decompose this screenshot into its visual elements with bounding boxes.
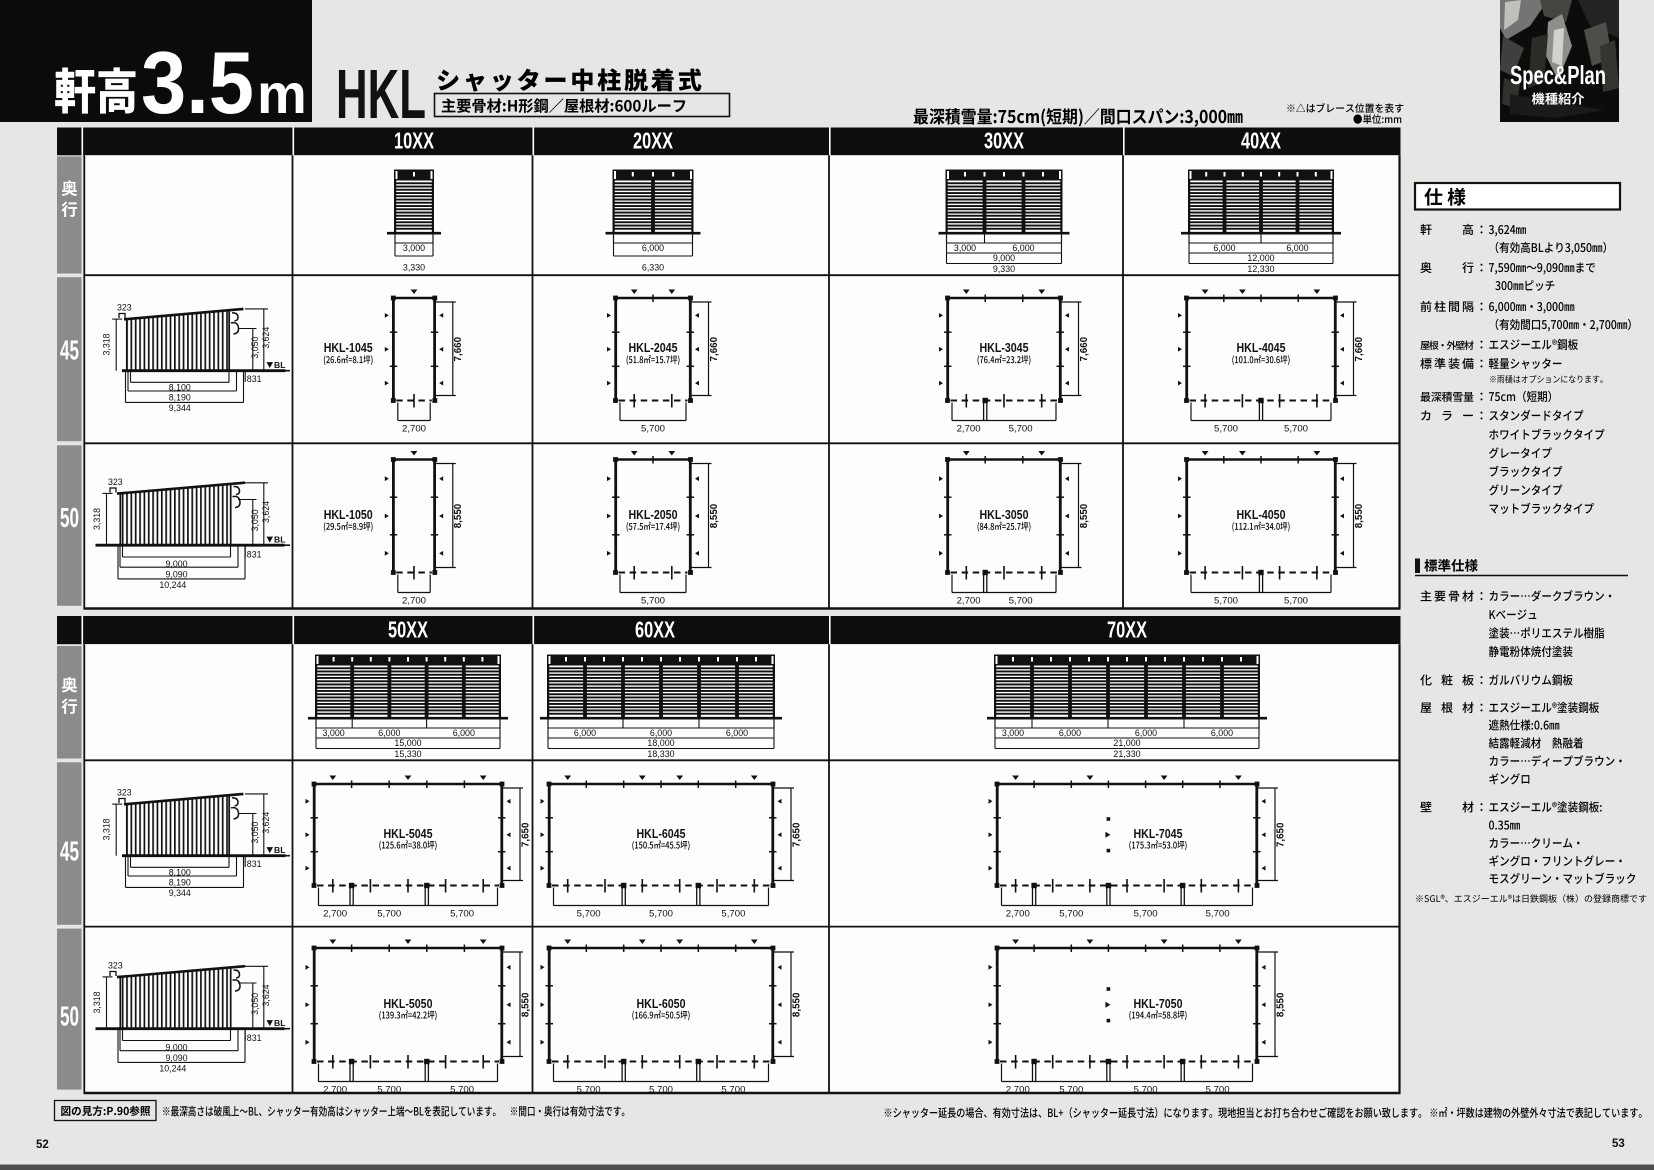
svg-text:6,000: 6,000	[650, 728, 672, 738]
svg-text:7,650: 7,650	[521, 822, 532, 847]
svg-text:2,700: 2,700	[957, 596, 981, 607]
svg-text:7,660: 7,660	[1354, 336, 1365, 361]
svg-text:5,700: 5,700	[1134, 1085, 1158, 1096]
svg-text:2,700: 2,700	[957, 424, 981, 435]
svg-text:50: 50	[60, 502, 79, 533]
svg-text:9,090: 9,090	[165, 569, 187, 579]
svg-text:HKL-1050: HKL-1050	[324, 507, 373, 522]
svg-text:6,000: 6,000	[1211, 728, 1233, 738]
svg-text:5,700: 5,700	[641, 424, 665, 435]
svg-text:3,000: 3,000	[954, 243, 976, 253]
svg-text:5,700: 5,700	[377, 1085, 401, 1096]
svg-text:m: m	[257, 62, 307, 125]
svg-text:323: 323	[108, 961, 123, 971]
svg-text:8,190: 8,190	[169, 877, 191, 887]
svg-text:7,650: 7,650	[792, 822, 803, 847]
svg-text:323: 323	[117, 788, 132, 798]
svg-text:50: 50	[60, 1001, 79, 1032]
svg-text:5,700: 5,700	[1214, 596, 1238, 607]
svg-text:831: 831	[247, 859, 262, 869]
svg-text:5,700: 5,700	[577, 1085, 601, 1096]
svg-text:12,000: 12,000	[1247, 253, 1274, 263]
svg-text:5,700: 5,700	[577, 909, 601, 920]
svg-text:3,050: 3,050	[250, 821, 260, 843]
svg-text:60XX: 60XX	[635, 617, 675, 643]
svg-text:6,000: 6,000	[453, 728, 475, 738]
svg-text:3,000: 3,000	[403, 243, 425, 253]
svg-text:6,000: 6,000	[1059, 728, 1081, 738]
svg-text:7,650: 7,650	[1276, 822, 1287, 847]
svg-text:5,700: 5,700	[649, 909, 673, 920]
svg-text:8,550: 8,550	[453, 503, 464, 528]
svg-text:3,318: 3,318	[92, 991, 102, 1013]
svg-text:5,700: 5,700	[721, 909, 745, 920]
svg-text:3,318: 3,318	[102, 333, 112, 355]
svg-text:5,700: 5,700	[377, 909, 401, 920]
svg-text:831: 831	[247, 1033, 262, 1043]
svg-text:5,700: 5,700	[641, 596, 665, 607]
svg-text:50XX: 50XX	[388, 617, 428, 643]
svg-text:3,000: 3,000	[322, 728, 344, 738]
svg-text:9,000: 9,000	[993, 253, 1015, 263]
svg-text:3,050: 3,050	[250, 336, 260, 358]
svg-text:52: 52	[36, 1139, 49, 1151]
svg-text:7,660: 7,660	[1079, 336, 1090, 361]
svg-text:2,700: 2,700	[323, 1085, 347, 1096]
svg-text:831: 831	[247, 374, 262, 384]
svg-text:HKL-3045: HKL-3045	[980, 340, 1029, 355]
svg-text:323: 323	[108, 477, 123, 487]
svg-text:9,344: 9,344	[169, 888, 191, 898]
svg-text:10,244: 10,244	[159, 580, 186, 590]
svg-text:8,550: 8,550	[1079, 503, 1090, 528]
svg-text:45: 45	[60, 335, 79, 366]
svg-text:BL: BL	[274, 535, 285, 545]
svg-text:6,330: 6,330	[642, 263, 664, 273]
svg-text:5,700: 5,700	[649, 1085, 673, 1096]
svg-text:18,000: 18,000	[647, 738, 674, 748]
svg-text:6,000: 6,000	[726, 728, 748, 738]
svg-text:2,700: 2,700	[402, 596, 426, 607]
svg-text:18,330: 18,330	[647, 749, 674, 759]
svg-text:BL: BL	[274, 1018, 285, 1028]
svg-text:5,700: 5,700	[1009, 596, 1033, 607]
svg-text:2,700: 2,700	[323, 909, 347, 920]
svg-text:5,700: 5,700	[1206, 1085, 1230, 1096]
svg-text:6,000: 6,000	[1286, 243, 1308, 253]
svg-text:5,700: 5,700	[1206, 909, 1230, 920]
svg-text:21,000: 21,000	[1113, 738, 1140, 748]
svg-text:HKL-4045: HKL-4045	[1237, 340, 1286, 355]
svg-text:15,330: 15,330	[394, 749, 421, 759]
svg-text:2,700: 2,700	[1006, 909, 1030, 920]
svg-text:2,700: 2,700	[1006, 1085, 1030, 1096]
svg-text:5,700: 5,700	[1214, 424, 1238, 435]
svg-text:HKL-4050: HKL-4050	[1237, 507, 1286, 522]
svg-text:HKL-2045: HKL-2045	[629, 340, 678, 355]
svg-text:HKL-6050: HKL-6050	[637, 996, 686, 1011]
svg-text:53: 53	[1612, 1138, 1625, 1150]
svg-text:9,090: 9,090	[165, 1053, 187, 1063]
svg-text:3.5: 3.5	[141, 33, 254, 132]
svg-text:5,700: 5,700	[1134, 909, 1158, 920]
svg-text:10,244: 10,244	[159, 1063, 186, 1073]
svg-text:10XX: 10XX	[394, 128, 434, 154]
svg-text:5,700: 5,700	[1284, 596, 1308, 607]
svg-text:5,700: 5,700	[1009, 424, 1033, 435]
svg-text:HKL-5045: HKL-5045	[384, 826, 433, 841]
svg-text:BL: BL	[274, 845, 285, 855]
svg-text:3,000: 3,000	[1002, 728, 1024, 738]
svg-text:5,700: 5,700	[450, 1085, 474, 1096]
svg-text:12,330: 12,330	[1247, 264, 1274, 274]
svg-text:8,190: 8,190	[169, 392, 191, 402]
svg-text:HKL-5050: HKL-5050	[384, 996, 433, 1011]
svg-text:HKL-7045: HKL-7045	[1134, 826, 1183, 841]
svg-text:BL: BL	[274, 360, 285, 370]
svg-text:6,000: 6,000	[574, 728, 596, 738]
svg-text:5,700: 5,700	[1284, 424, 1308, 435]
svg-text:9,344: 9,344	[169, 403, 191, 413]
svg-text:323: 323	[117, 303, 132, 313]
svg-text:3,050: 3,050	[250, 993, 260, 1015]
svg-text:20XX: 20XX	[633, 128, 673, 154]
svg-text:6,000: 6,000	[1012, 243, 1034, 253]
svg-text:831: 831	[247, 549, 262, 559]
svg-text:5,700: 5,700	[1059, 1085, 1083, 1096]
svg-text:8,550: 8,550	[1276, 992, 1287, 1017]
svg-text:6,000: 6,000	[1135, 728, 1157, 738]
svg-text:3,318: 3,318	[102, 818, 112, 840]
svg-text:7,660: 7,660	[709, 336, 720, 361]
svg-text:3,318: 3,318	[92, 508, 102, 530]
svg-text:HKL-2050: HKL-2050	[629, 507, 678, 522]
svg-text:3,330: 3,330	[403, 263, 425, 273]
svg-text:HKL-3050: HKL-3050	[980, 507, 1029, 522]
svg-text:3,050: 3,050	[250, 509, 260, 531]
svg-text:8,550: 8,550	[1354, 503, 1365, 528]
svg-text:HKL: HKL	[336, 55, 426, 133]
svg-text:5,700: 5,700	[450, 909, 474, 920]
svg-text:Spec&Plan: Spec&Plan	[1510, 60, 1606, 90]
svg-text:3,624: 3,624	[261, 812, 271, 834]
svg-text:8,550: 8,550	[792, 992, 803, 1017]
svg-text:8,550: 8,550	[709, 503, 720, 528]
svg-text:3,624: 3,624	[261, 984, 271, 1006]
svg-text:6,000: 6,000	[1213, 243, 1235, 253]
svg-text:6,000: 6,000	[378, 728, 400, 738]
svg-text:21,330: 21,330	[1113, 749, 1140, 759]
svg-text:3,624: 3,624	[261, 327, 271, 349]
svg-text:HKL-1045: HKL-1045	[324, 340, 373, 355]
svg-text:5,700: 5,700	[1059, 909, 1083, 920]
svg-text:15,000: 15,000	[394, 738, 421, 748]
svg-text:HKL-6045: HKL-6045	[637, 826, 686, 841]
svg-text:40XX: 40XX	[1241, 128, 1281, 154]
svg-text:9,330: 9,330	[993, 264, 1015, 274]
svg-text:2,700: 2,700	[402, 424, 426, 435]
svg-text:30XX: 30XX	[984, 128, 1024, 154]
svg-text:70XX: 70XX	[1107, 617, 1147, 643]
svg-text:6,000: 6,000	[642, 243, 664, 253]
svg-text:3,624: 3,624	[261, 501, 271, 523]
svg-text:HKL-7050: HKL-7050	[1134, 996, 1183, 1011]
svg-text:45: 45	[60, 836, 79, 867]
svg-text:7,660: 7,660	[453, 336, 464, 361]
svg-text:8,550: 8,550	[521, 992, 532, 1017]
svg-text:5,700: 5,700	[721, 1085, 745, 1096]
